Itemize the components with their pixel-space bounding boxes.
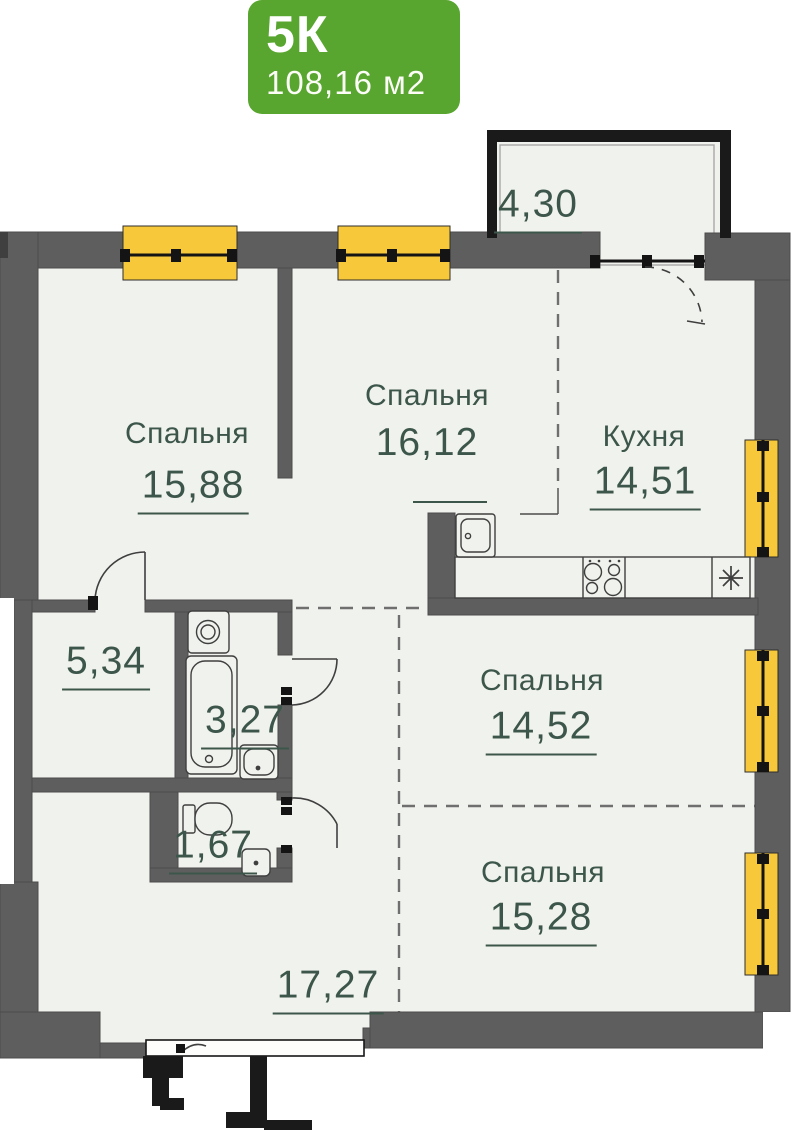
apartment-type-label: 5К bbox=[266, 8, 460, 63]
room-area-balcony: 4,30 bbox=[494, 183, 582, 234]
left-wall-notch bbox=[0, 232, 8, 258]
room-area-bedroom-1: 15,88 bbox=[138, 464, 249, 515]
room-area-bedroom-2: 16,12 bbox=[372, 421, 483, 465]
entrance-vestibule-outline bbox=[143, 1056, 312, 1130]
room-area-wc: 1,67 bbox=[169, 824, 257, 875]
window-icon-top-1 bbox=[120, 226, 237, 280]
room-name-kitchen: Кухня bbox=[603, 420, 686, 454]
room-name-bedroom-4: Спальня bbox=[481, 856, 605, 890]
room-name-bedroom-1: Спальня bbox=[125, 417, 249, 451]
room-area-bathroom: 3,27 bbox=[201, 699, 289, 750]
window-icon-bedroom-4 bbox=[745, 853, 778, 975]
room-name-bedroom-3: Спальня bbox=[480, 664, 604, 698]
apartment-badge: 5К 108,16 м2 bbox=[248, 0, 460, 114]
floor-plan: Спальня 15,88 Спальня 16,12 Кухня 14,51 … bbox=[0, 0, 793, 1130]
window-icon-bedroom-3 bbox=[745, 650, 778, 772]
bath-sink-icon bbox=[240, 745, 278, 779]
washing-machine-icon bbox=[188, 611, 229, 653]
storage-top-wall-b bbox=[145, 600, 292, 612]
room-area-bedroom-3: 14,52 bbox=[486, 705, 597, 756]
storage-top-wall-a bbox=[32, 600, 95, 612]
bath-right-wall-a bbox=[278, 612, 292, 655]
left-wall-middle bbox=[14, 600, 32, 882]
room-area-bedroom-4: 15,28 bbox=[486, 896, 597, 947]
room-area-kitchen: 14,51 bbox=[590, 460, 701, 511]
window-icon-kitchen bbox=[745, 440, 778, 557]
left-wall-upper bbox=[0, 232, 38, 600]
kitchen-stub-wall bbox=[428, 513, 455, 598]
top-right-corner-wall bbox=[705, 233, 790, 280]
floor-plan-drawing bbox=[0, 0, 793, 1130]
kitchen-sink-icon bbox=[456, 514, 495, 557]
kitchen-bottom-wall bbox=[428, 598, 758, 615]
entrance-door bbox=[146, 1040, 364, 1056]
bottom-wall-notch bbox=[100, 1043, 148, 1058]
kitchen-counter bbox=[455, 557, 750, 598]
bottom-wall-left bbox=[0, 1012, 100, 1058]
bottom-wall-right bbox=[370, 1012, 763, 1048]
room-name-bedroom-2: Спальня bbox=[365, 379, 489, 413]
room-area-hallway: 17,27 bbox=[273, 964, 384, 1015]
bedroom-divider-wall bbox=[278, 268, 292, 478]
bath-bottom-wall bbox=[32, 778, 292, 792]
room-area-storage: 5,34 bbox=[62, 640, 150, 691]
top-wall bbox=[0, 232, 600, 268]
window-icon-top-2 bbox=[336, 226, 450, 280]
apartment-total-area: 108,16 м2 bbox=[266, 64, 460, 102]
left-wall-lower bbox=[0, 882, 38, 1012]
